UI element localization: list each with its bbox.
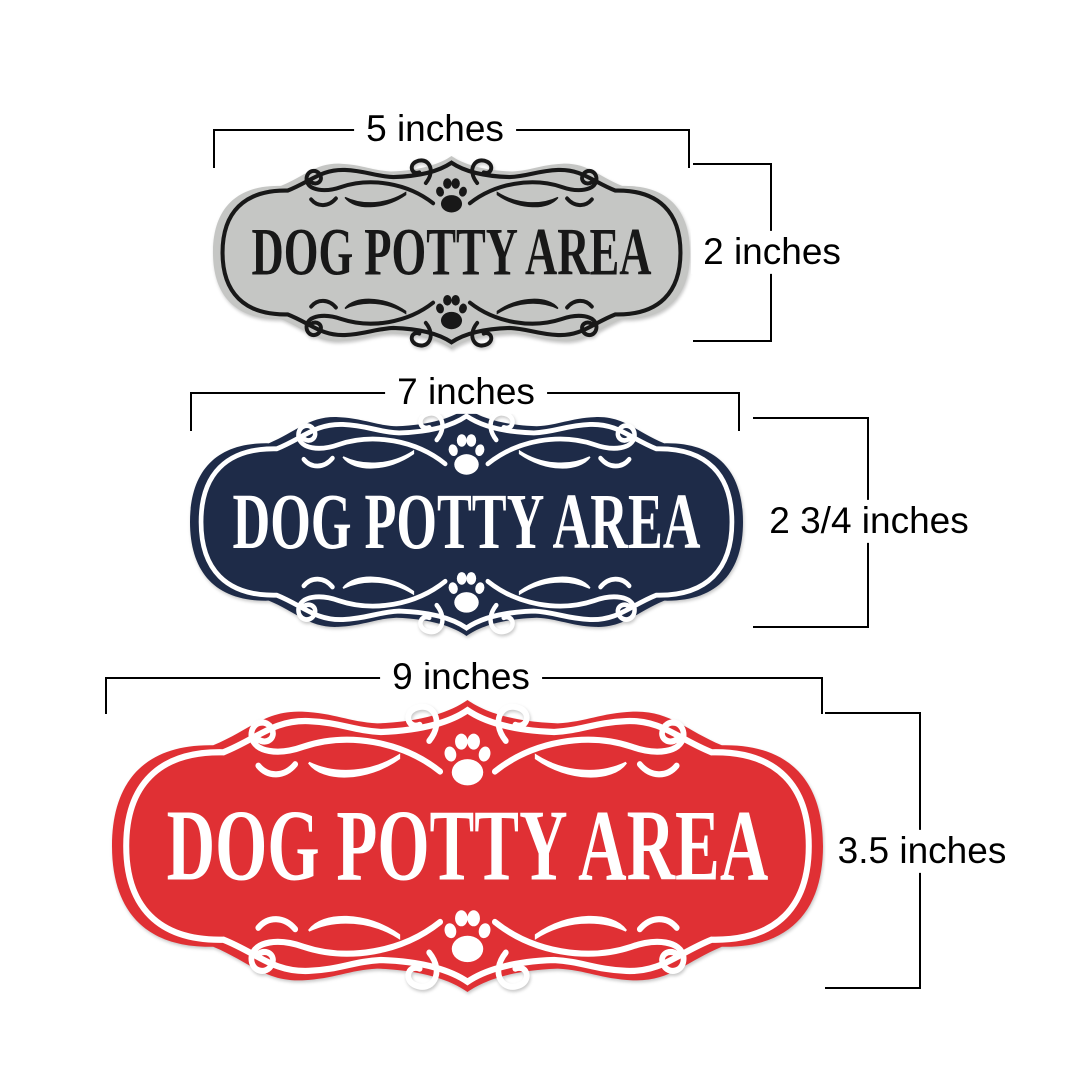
sign-small: DOG POTTY AREA <box>213 156 690 349</box>
sign-large: DOG POTTY AREA <box>112 700 823 992</box>
width-label: 7 inches <box>385 371 547 414</box>
sign-large-svg: DOG POTTY AREA <box>112 700 823 992</box>
sign-text: DOG POTTY AREA <box>233 477 701 566</box>
product-dimension-diagram: DOG POTTY AREA 5 inches 2 inches D <box>0 0 1082 1082</box>
width-bracket-tick <box>105 677 107 714</box>
sign-text: DOG POTTY AREA <box>252 215 652 290</box>
height-bracket-tick <box>693 340 772 342</box>
height-bracket-tick <box>825 712 920 714</box>
height-label: 3.5 inches <box>826 830 1019 873</box>
height-bracket-tick <box>825 987 920 989</box>
height-label: 2 inches <box>691 231 853 274</box>
sign-text: DOG POTTY AREA <box>167 790 769 903</box>
height-bracket-tick <box>753 626 869 628</box>
sign-medium-svg: DOG POTTY AREA <box>190 408 743 636</box>
height-bracket-tick <box>693 163 772 165</box>
width-bracket-tick <box>821 677 823 714</box>
height-label: 2 3/4 inches <box>757 500 981 543</box>
height-bracket-tick <box>753 417 869 419</box>
width-bracket-tick <box>190 392 192 431</box>
sign-medium: DOG POTTY AREA <box>190 408 743 636</box>
width-bracket-tick <box>688 129 690 168</box>
sign-small-svg: DOG POTTY AREA <box>213 156 690 349</box>
width-bracket-tick <box>738 392 740 431</box>
width-label: 9 inches <box>380 656 542 699</box>
width-bracket-tick <box>213 129 215 168</box>
width-label: 5 inches <box>354 108 516 151</box>
